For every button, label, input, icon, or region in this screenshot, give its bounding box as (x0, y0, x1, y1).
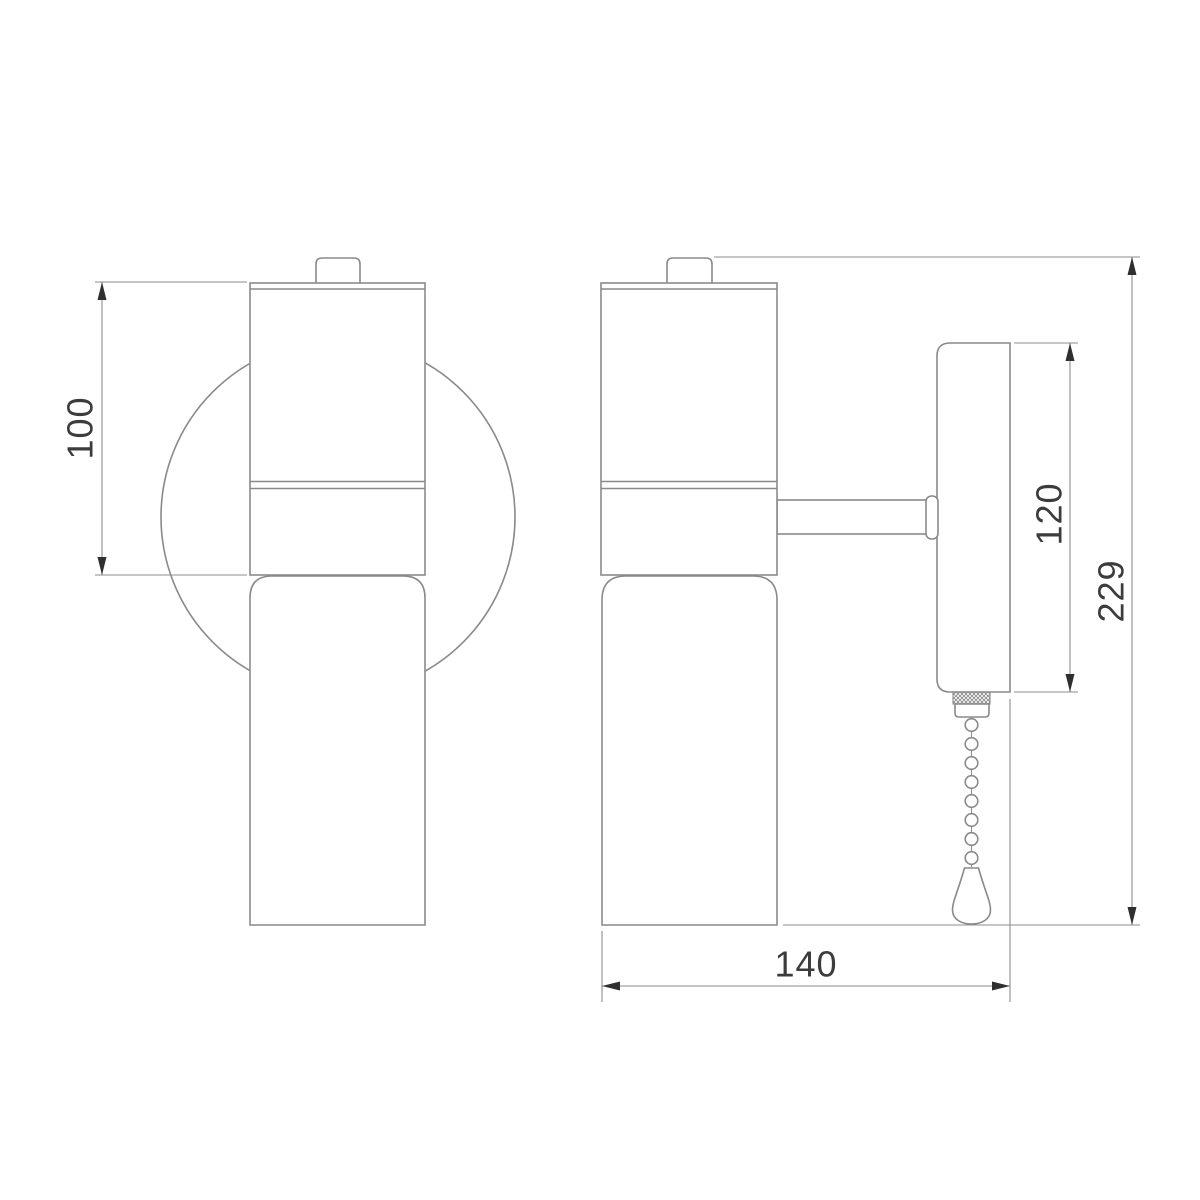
front-glass-shade (250, 576, 425, 925)
arrowhead-left (602, 982, 620, 991)
arrowhead-up (98, 282, 107, 300)
drawing-canvas: 100 120 229 140 (0, 0, 1200, 1200)
pull-tassel (953, 868, 991, 924)
wall-sconce-dimension-drawing: 100 120 229 140 (0, 0, 1200, 1200)
arrowhead-up (1128, 257, 1137, 275)
side-lamp-body (601, 283, 777, 575)
side-mounting-arm (777, 500, 928, 534)
arrowhead-down (1066, 674, 1075, 692)
dimension-backplate-height: 120 (1014, 343, 1078, 692)
dimension-value: 120 (1029, 482, 1070, 545)
arrowhead-up (1066, 343, 1075, 361)
dimension-value: 229 (1091, 559, 1132, 622)
dimension-value: 100 (60, 396, 101, 459)
knurled-ferrule (953, 692, 990, 704)
side-view (601, 258, 1010, 925)
side-top-knob (667, 258, 712, 284)
arrowhead-right (992, 982, 1010, 991)
switch-housing (955, 704, 989, 717)
front-top-knob (316, 258, 360, 284)
side-glass-shade (602, 576, 777, 925)
front-view (161, 258, 515, 925)
dimension-overall-height: 229 (714, 257, 1140, 925)
pull-chain-switch (953, 692, 991, 924)
arrowhead-down (98, 557, 107, 575)
side-arm-end-cap (926, 496, 938, 539)
dimension-value: 140 (774, 944, 837, 985)
side-wall-backplate (937, 343, 1010, 692)
arrowhead-down (1128, 907, 1137, 925)
front-lamp-body (250, 283, 425, 575)
